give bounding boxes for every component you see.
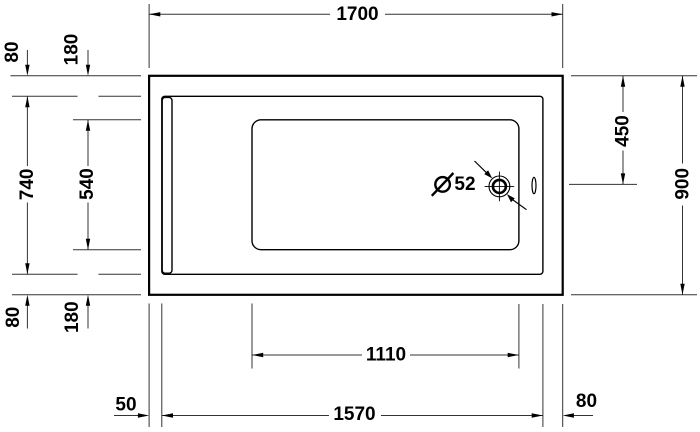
svg-text:80: 80 (2, 41, 23, 62)
svg-text:1700: 1700 (336, 4, 378, 25)
svg-text:900: 900 (672, 168, 693, 200)
svg-text:540: 540 (77, 168, 98, 200)
svg-text:50: 50 (115, 395, 136, 416)
svg-text:52: 52 (454, 174, 475, 195)
svg-text:80: 80 (576, 391, 597, 412)
svg-text:450: 450 (613, 115, 634, 147)
svg-text:1570: 1570 (333, 404, 375, 425)
svg-text:180: 180 (62, 301, 83, 333)
svg-text:1110: 1110 (366, 345, 406, 366)
svg-text:80: 80 (3, 307, 24, 328)
svg-text:180: 180 (62, 34, 83, 66)
svg-text:740: 740 (17, 169, 38, 201)
